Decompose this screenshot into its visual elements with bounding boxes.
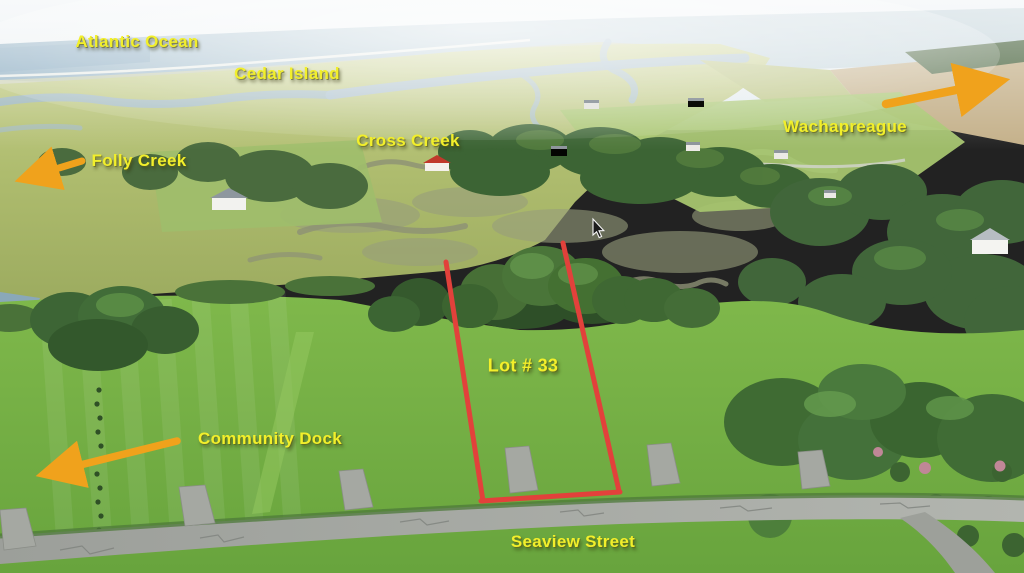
aerial-photo: Atlantic Ocean Cedar Island Cross Creek … [0,0,1024,573]
label-wachapreague: Wachapreague [783,117,907,137]
label-folly-creek: Folly Creek [92,151,187,171]
label-atlantic-ocean: Atlantic Ocean [75,32,198,52]
label-seaview-street: Seaview Street [511,532,635,552]
label-community-dock: Community Dock [198,429,342,449]
aerial-photo-canvas [0,0,1024,573]
label-cross-creek: Cross Creek [356,131,459,151]
label-cedar-island: Cedar Island [234,64,340,84]
label-lot-number: Lot # 33 [488,356,558,377]
